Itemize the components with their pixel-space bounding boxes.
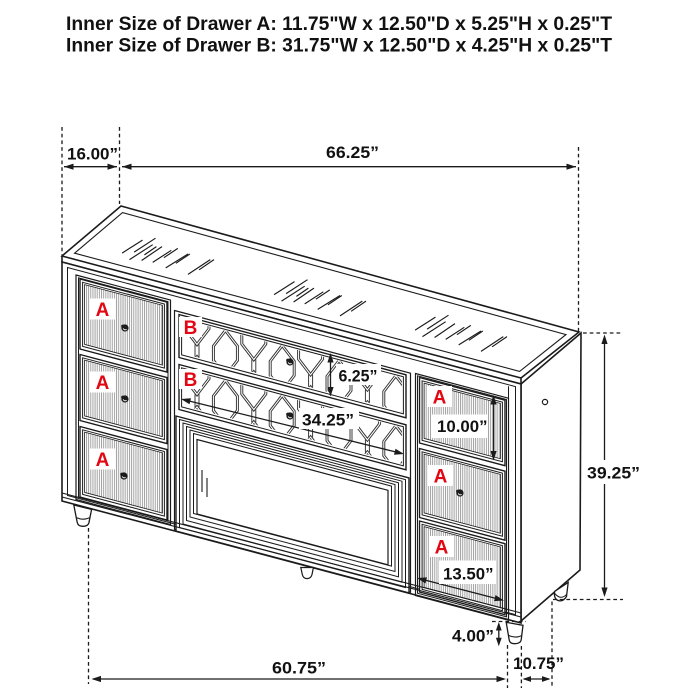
svg-text:10.00”: 10.00” <box>437 417 488 436</box>
svg-text:39.25”: 39.25” <box>587 464 640 483</box>
svg-text:B: B <box>184 370 198 391</box>
svg-text:34.25”: 34.25” <box>302 411 354 430</box>
svg-text:A: A <box>96 450 110 471</box>
svg-text:6.25”: 6.25” <box>339 367 378 386</box>
svg-text:66.25”: 66.25” <box>326 143 379 162</box>
svg-text:A: A <box>433 387 447 408</box>
svg-text:A: A <box>96 300 110 321</box>
svg-text:Inner Size of Drawer B: 31.75": Inner Size of Drawer B: 31.75"W x 12.50"… <box>66 35 612 57</box>
svg-text:4.00”: 4.00” <box>452 627 494 646</box>
svg-text:A: A <box>96 373 110 394</box>
svg-text:10.75”: 10.75” <box>513 654 564 673</box>
svg-text:B: B <box>184 318 198 339</box>
svg-text:A: A <box>435 537 449 558</box>
svg-text:16.00”: 16.00” <box>67 145 118 164</box>
svg-text:Inner Size of Drawer A: 11.75": Inner Size of Drawer A: 11.75"W x 12.50"… <box>66 13 612 35</box>
svg-text:13.50”: 13.50” <box>443 565 494 584</box>
svg-text:60.75”: 60.75” <box>272 659 326 678</box>
svg-text:A: A <box>434 466 448 487</box>
